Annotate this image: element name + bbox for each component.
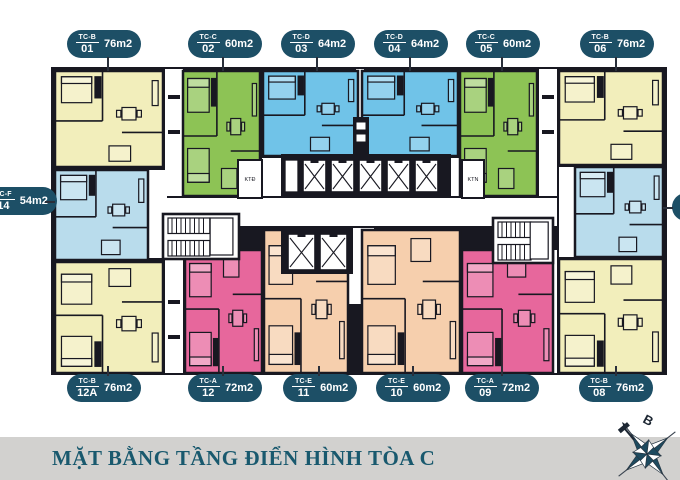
chair [108,207,112,213]
sofa [254,329,258,361]
chair [435,106,439,112]
unit-code-number: TC-E11 [292,378,315,399]
unit-area: 76m2 [616,382,644,394]
bathroom [224,257,239,277]
sofa [653,332,659,362]
bathroom [102,240,121,254]
label-connector [615,366,617,376]
label-connector [107,57,109,71]
bathroom [311,137,330,151]
wardrobe [213,339,217,366]
chair [436,304,440,314]
unit-code-number: TC-B01 [76,34,100,55]
label-connector [409,57,411,71]
chair [638,110,642,117]
chair [137,320,141,328]
unit-code-number: TC-A12 [197,378,221,399]
stair-landing [530,222,548,259]
label-connector [222,366,224,376]
bathroom [222,169,237,189]
bathroom [109,269,131,287]
chair [514,314,518,323]
unit-code-number: TC-C05 [475,34,499,55]
unit-code-number: TC-A09 [474,378,498,399]
table [113,204,125,216]
unit-label-04: TC-D0464m2 [374,30,449,58]
chair [618,110,622,117]
compass-north-label: B [641,411,656,429]
bed-pillow [269,76,296,82]
wardrobe [608,172,613,192]
chair [418,304,422,314]
table [231,119,241,135]
unit-label-06: TC-B0676m2 [580,30,655,58]
chair [312,304,315,314]
chair [227,122,230,131]
elevator-door [330,234,338,237]
bed-pillow [368,246,395,256]
bathroom [619,237,637,251]
table [122,316,136,330]
compass-rose: B [598,396,680,480]
label-connector [501,57,503,71]
unit-label-11: TC-E1160m2 [283,374,357,402]
wardrobe [398,76,403,95]
chair [625,204,629,210]
bed-pillow [368,76,395,82]
unit-code-number: TC-C02 [197,34,221,55]
unit-area: 76m2 [104,382,132,394]
sofa [448,80,453,102]
label-connector [222,57,224,71]
unit-code-number: TC-B06 [589,34,613,55]
ac-ledge [168,335,180,339]
wardrobe [95,342,101,366]
chair [618,318,622,326]
bed-pillow [465,79,487,88]
unit-label-12A: TC-B12A76m2 [67,374,142,402]
elevator-lobby-shaft [285,160,298,192]
bed-pillow [565,272,594,280]
unit-area: 64m2 [411,38,439,50]
unit-code-number: TC-D04 [383,34,407,55]
unit-area: 60m2 [225,38,253,50]
sofa [139,179,144,202]
page-title: MẶT BẰNG TẦNG ĐIỂN HÌNH TÒA C [52,437,680,480]
bed-pillow [565,358,594,366]
table [630,201,641,213]
table [508,119,518,135]
unit-label-10: TC-E1060m2 [376,374,450,402]
table [623,315,637,330]
ac-ledge [542,95,554,99]
compass-graphic: B [598,400,680,480]
stair-flight [498,245,531,261]
unit-code-number: TC-E10 [385,378,408,399]
unit-label-02: TC-C0260m2 [188,30,263,58]
ac-ledge [168,300,180,304]
chair [317,106,321,112]
sofa [152,81,158,106]
unit-area: 72m2 [225,382,253,394]
table [233,310,243,326]
title-bar: MẶT BẰNG TẦNG ĐIỂN HÌNH TÒA C [0,437,680,480]
floor-plan-svg: KTĐKTN [0,0,680,437]
table [423,300,436,319]
wardrobe [496,339,501,366]
sofa [653,80,659,104]
chair [244,314,247,323]
stair-flight [498,222,531,238]
elevator-door [339,160,347,163]
bathroom [611,144,632,159]
service-box [356,122,366,130]
sofa [252,84,256,117]
chair [531,314,535,323]
bed-pillow [565,77,594,84]
bathroom [611,266,632,284]
bed-pillow [467,357,492,366]
bed-pillow [61,274,91,282]
label-connector [107,366,109,376]
wardrobe [89,175,94,195]
elevator-door [423,160,431,163]
wardrobe [95,77,101,98]
unit-label-05: TC-C0560m2 [466,30,541,58]
bed-pillow [190,264,212,273]
bed-pillow [269,354,293,364]
unit-area: 72m2 [502,382,530,394]
sofa [152,333,158,362]
chair [328,304,331,314]
label-connector [615,57,617,71]
stair-landing [210,218,233,255]
ac-ledge [168,95,180,99]
chair [335,106,339,112]
ac-ledge [168,130,180,134]
elevator-door [367,160,375,163]
sofa [349,80,354,102]
unit-label-03: TC-D0364m2 [281,30,356,58]
service-box [356,134,366,142]
label-connector [501,366,503,376]
bed-pillow [188,174,210,183]
label-connector [316,57,318,71]
unit-area: 60m2 [320,382,348,394]
unit-area: 64m2 [318,38,346,50]
unit-code-number: TC-F14 [0,191,15,212]
elevator-door [395,160,403,163]
label-connector [663,207,673,209]
sofa [654,176,659,199]
unit-area: 60m2 [413,382,441,394]
bathroom [411,239,431,262]
elevator-door [311,160,319,163]
sofa [340,322,345,359]
unit-area: 76m2 [104,38,132,50]
bed-pillow [61,359,91,367]
unit-label-01: TC-B0176m2 [67,30,142,58]
entry-hall [262,158,281,196]
sofa [529,84,533,117]
unit-label-12: TC-A1272m2 [188,374,263,402]
wardrobe [597,77,603,98]
bed-pillow [190,357,212,366]
chair [242,122,245,131]
elevator-door [298,234,306,237]
wardrobe [398,333,403,364]
bed-pillow [580,172,605,178]
label-connector [318,366,320,376]
shaft-label-ktn: KTN [468,177,479,183]
chair [137,110,141,117]
unit-code-number: TC-D03 [290,34,314,55]
unit-area: 54m2 [20,195,48,207]
wardrobe [298,76,303,95]
table [518,310,530,326]
shaft-label-ktd: KTĐ [245,177,256,183]
bed-pillow [61,175,87,181]
label-connector [412,366,414,376]
bathroom [410,137,429,151]
table [322,103,334,114]
chair [126,207,130,213]
bed-pillow [368,354,395,364]
light-well [165,258,183,373]
sofa [544,329,549,361]
unit-code-number: TC-B12A [76,378,100,399]
wardrobe [597,341,603,366]
wardrobe [211,79,215,107]
table [623,107,637,119]
table [422,103,434,114]
floor-plan-canvas: { "title_bar": { "title": "MẶT BẰNG TẦNG… [0,0,680,480]
bed-pillow [61,77,91,84]
label-connector [45,201,55,203]
table [122,107,136,119]
bathroom [499,169,514,189]
chair [504,122,507,131]
bed-pillow [188,79,210,88]
chair [117,320,121,328]
wardrobe [488,79,492,107]
bed-pillow [467,264,492,273]
chair [417,106,421,112]
chair [642,204,646,210]
unit-area: 60m2 [503,38,531,50]
unit-area: 76m2 [617,38,645,50]
unit-label-09: TC-A0972m2 [465,374,540,402]
bathroom [109,146,131,161]
wardrobe [295,333,300,364]
ac-ledge [542,130,554,134]
chair [519,122,522,131]
chair [117,110,121,117]
chair [229,314,232,323]
table [316,300,327,319]
chair [638,318,642,326]
right-hall [559,167,575,257]
sofa [450,322,455,359]
